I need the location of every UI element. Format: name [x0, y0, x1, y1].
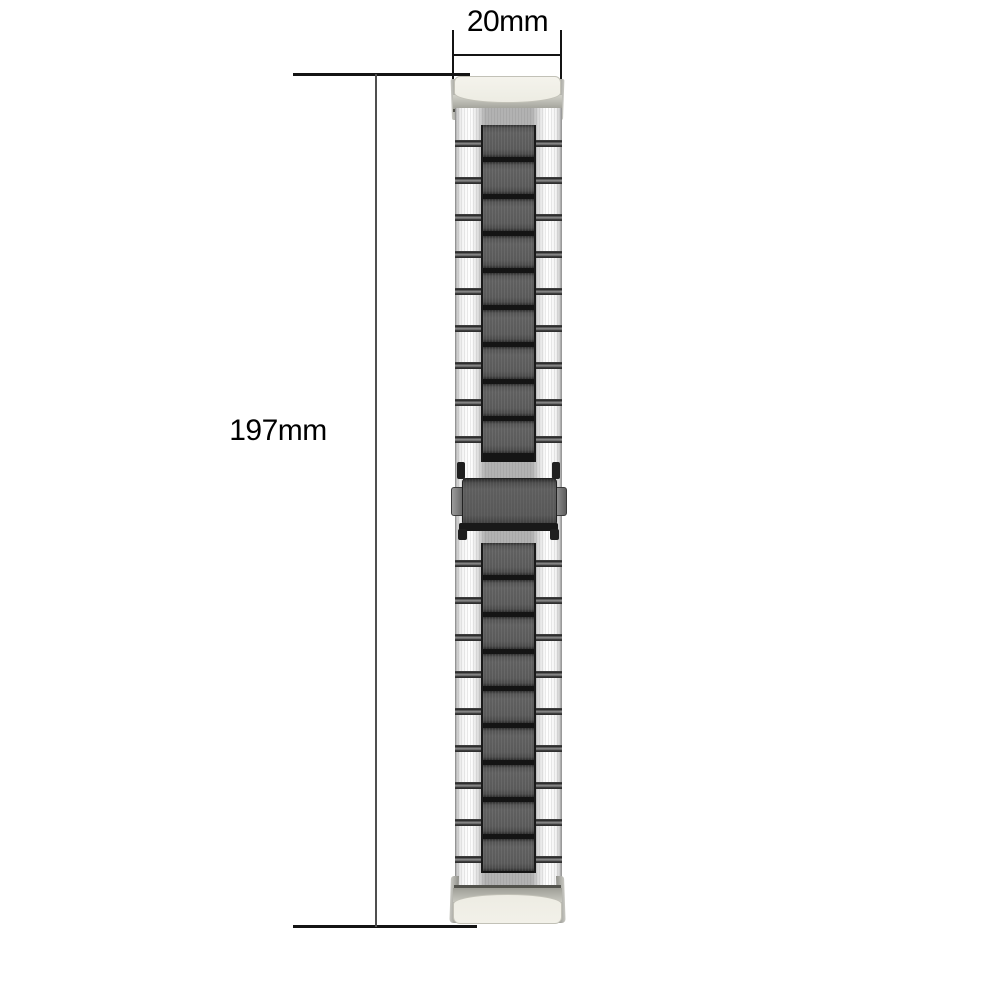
- center-link: [483, 654, 534, 686]
- center-link: [483, 421, 534, 453]
- clasp-bottom-hinge-left: [458, 529, 467, 540]
- clasp-bottom-hinge-bar: [459, 523, 558, 531]
- length-dimension-line-bottom: [293, 925, 477, 928]
- clasp-bottom-hinge-right: [550, 529, 559, 540]
- center-link: [483, 580, 534, 612]
- bottom-end-link-ivory-panel: [453, 894, 562, 924]
- center-link: [483, 617, 534, 649]
- top-end-link-ivory-panel: [454, 76, 561, 103]
- upper-links-section: [455, 108, 562, 463]
- center-link-column: [481, 125, 536, 462]
- center-link: [483, 125, 534, 157]
- center-link: [483, 691, 534, 723]
- product-dimension-diagram: 20mm 197mm: [0, 0, 1000, 1000]
- length-dimension-line-top: [293, 73, 470, 76]
- center-link: [483, 236, 534, 268]
- center-link: [483, 765, 534, 797]
- width-dimension-label: 20mm: [453, 7, 562, 37]
- center-link-column: [481, 543, 536, 873]
- center-link: [483, 273, 534, 305]
- center-link: [483, 728, 534, 760]
- clasp-top-hinge-right: [552, 462, 560, 479]
- length-dimension-line-vertical: [375, 74, 377, 927]
- center-link: [483, 162, 534, 194]
- center-link: [483, 839, 534, 871]
- center-link: [483, 802, 534, 834]
- center-link: [483, 384, 534, 416]
- lower-links-section: [455, 543, 562, 888]
- clasp-body: [462, 478, 557, 526]
- center-link: [483, 199, 534, 231]
- length-dimension-label: 197mm: [216, 416, 340, 446]
- center-link: [483, 310, 534, 342]
- center-link: [483, 347, 534, 379]
- clasp-top-hinge-left: [457, 462, 465, 479]
- center-link: [483, 543, 534, 575]
- width-dimension-line: [453, 54, 562, 56]
